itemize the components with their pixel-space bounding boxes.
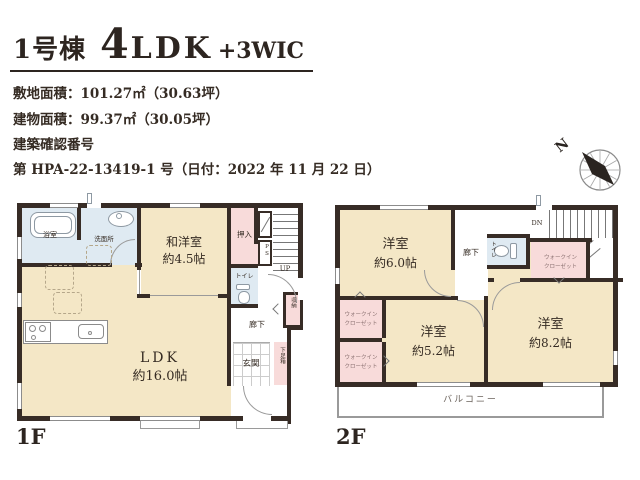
entrance-label: 玄関 (233, 358, 269, 370)
hall-label-2f: 廊下 (453, 247, 489, 259)
terrace-step (140, 421, 200, 429)
stair-winder-box (258, 211, 272, 238)
wic-label-line: ウォークイン (341, 354, 381, 363)
floor1-label: 1F (16, 424, 46, 449)
shoe-box-label: 下足箱 (277, 347, 285, 364)
title-underline (10, 70, 313, 72)
confirmation-label: 建築確認番号 (13, 136, 94, 156)
ldk-name: LDK (100, 348, 220, 368)
wic-left-upper-label: ウォークイン クローゼット (341, 311, 381, 330)
wall-segment (487, 234, 530, 238)
washbasin-faucet (116, 213, 122, 219)
winder-arrow (261, 217, 270, 232)
wic-label-line: クローゼット (533, 263, 588, 272)
balcony-label: バルコニー (339, 394, 602, 407)
washroom-label: 洗面所 (78, 235, 130, 244)
toilet-label-1f: トイレ (231, 273, 258, 282)
door-arc (492, 282, 520, 310)
wall-segment (487, 265, 530, 269)
ldk-label: LDK 約16.0帖 (100, 348, 220, 387)
floorplan-1f: PS UP 浴室 洗面所 和洋室 約4.5帖 押入 トイレ 収納 廊下 玄関 下… (17, 203, 303, 421)
plan-count: 4 (100, 20, 129, 68)
pipe-space-label: PS (262, 244, 270, 258)
bath-label: 浴室 (26, 230, 74, 240)
stove-burner (31, 335, 36, 340)
stairs-up-label: UP (272, 264, 298, 274)
toilet-bowl-1f (238, 291, 250, 304)
sliding-door-line (139, 270, 140, 296)
tatami-room-name: 和洋室 (140, 234, 228, 251)
room-b-size: 約5.2帖 (383, 343, 484, 360)
plan-type: LDK (131, 31, 213, 66)
entrance-porch (236, 421, 288, 429)
stairs-up (273, 208, 298, 270)
stove-burner (29, 325, 36, 332)
window (380, 205, 428, 210)
compass-icon: N (548, 128, 626, 206)
wall-segment (530, 238, 592, 242)
room-c-name: 洋室 (488, 316, 613, 335)
wall-segment (531, 278, 623, 282)
oshiire-label: 押入 (231, 230, 258, 241)
balcony: バルコニー (337, 387, 604, 418)
room-a-label: 洋室 約6.0帖 (340, 236, 451, 272)
building-area: 建物面積：99.37㎡（30.05坪） (13, 111, 219, 131)
stove-burner (39, 325, 46, 332)
tatami-room-label: 和洋室 約4.5帖 (140, 234, 228, 269)
room-a-size: 約6.0帖 (340, 255, 451, 272)
stairs-down (543, 210, 613, 238)
storage-label: 収納 (288, 297, 296, 308)
window (17, 237, 22, 259)
wall-segment (231, 264, 258, 268)
washing-machine (86, 245, 112, 266)
wall-segment (488, 278, 494, 282)
stairs-down-label: DN (528, 219, 546, 228)
door-opening (298, 278, 303, 300)
room-c-size: 約8.2帖 (488, 335, 613, 352)
window (170, 203, 200, 208)
compass-north-label: N (552, 135, 572, 156)
hall-label-1f: 廊下 (242, 319, 272, 331)
building-number: 1号棟 (13, 29, 86, 66)
tatami-room-size: 約4.5帖 (140, 251, 228, 268)
wic-label-line: クローゼット (341, 320, 381, 329)
wic-right-label: ウォークイン クローゼット (533, 254, 588, 273)
door-leaf (87, 193, 92, 204)
door-leaf (536, 195, 541, 206)
toilet-bowl-2f (494, 245, 509, 257)
confirmation-number: 第 HPA-22-13419-1 号（日付：2022 年 11 月 22 日） (13, 161, 380, 181)
toilet-tank-2f (510, 243, 517, 259)
furniture-outline (53, 292, 82, 314)
room-b-name: 洋室 (383, 324, 484, 343)
door-arc (424, 270, 451, 297)
wall-segment (451, 210, 455, 270)
plan-suffix: +3WIC (218, 38, 304, 64)
toilet-tank-1f (236, 284, 250, 290)
window (17, 383, 22, 409)
wall-segment (227, 298, 231, 386)
site-area: 敷地面積：101.27㎡（30.63坪） (13, 85, 228, 105)
stove (25, 322, 51, 342)
toilet-label-2f: トイレ (488, 241, 496, 258)
room-c-label: 洋室 約8.2帖 (488, 316, 613, 352)
building-notch (291, 330, 308, 426)
wic-label-line: ウォークイン (341, 311, 381, 320)
room-b-label: 洋室 約5.2帖 (383, 324, 484, 360)
sink-faucet (88, 331, 92, 335)
furniture-outline (45, 265, 74, 290)
wall-segment (137, 294, 150, 298)
wall-segment (520, 278, 531, 282)
wall-segment (231, 304, 258, 308)
window (17, 293, 22, 307)
wall-segment (340, 338, 382, 342)
wic-label-line: クローゼット (341, 363, 381, 372)
floorplan-2f: 洋室 約6.0帖 廊下 DN トイレ ウォークイン クローゼット ウォークイン … (335, 205, 618, 387)
wall-segment (287, 326, 291, 424)
door-arc (457, 300, 484, 327)
sliding-door-line (150, 295, 218, 296)
floor2-label: 2F (336, 424, 366, 449)
stair-return-zone (590, 238, 613, 280)
page-title: 1号棟 4 LDK +3WIC (13, 20, 304, 68)
wic-label-line: ウォークイン (533, 254, 588, 263)
window (50, 416, 110, 421)
room-a-name: 洋室 (340, 236, 451, 255)
window (50, 203, 78, 208)
pipe-space: PS (258, 240, 272, 266)
window (613, 351, 618, 365)
wic-left-lower-label: ウォークイン クローゼット (341, 354, 381, 373)
ldk-size: 約16.0帖 (100, 368, 220, 387)
